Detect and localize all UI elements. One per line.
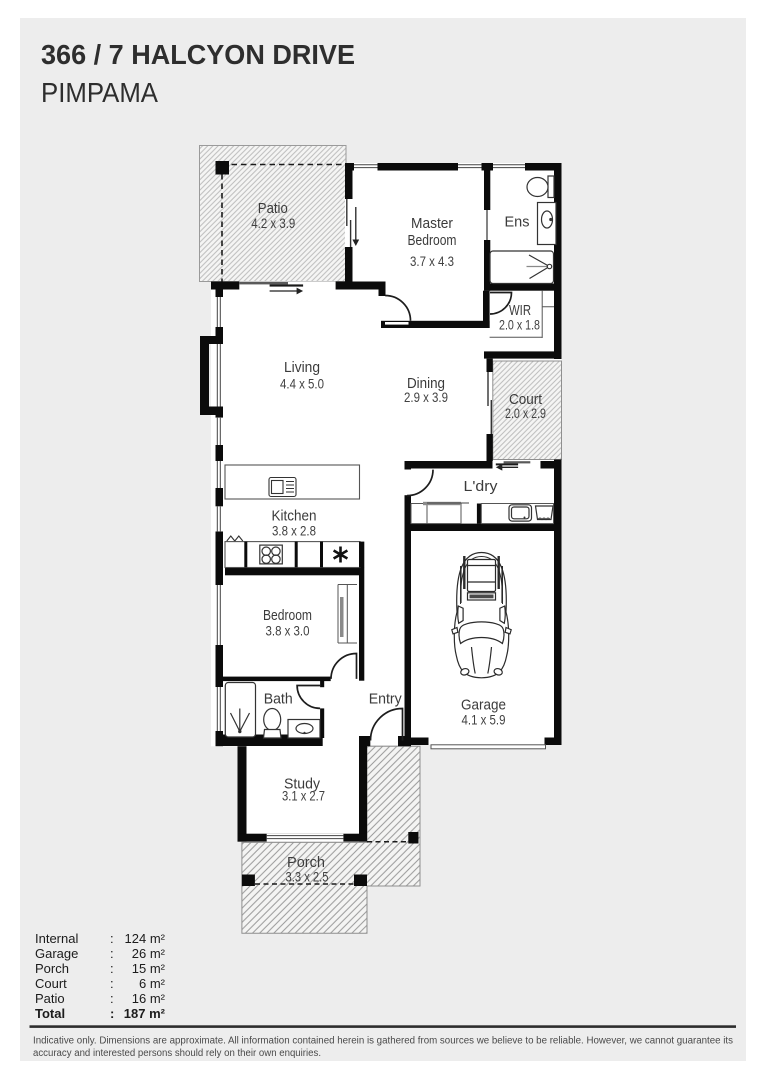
svg-text:187 m²: 187 m² xyxy=(124,1006,166,1021)
svg-text:Master: Master xyxy=(411,215,453,232)
svg-text:2.0 x 2.9: 2.0 x 2.9 xyxy=(505,405,546,421)
svg-text:Bedroom: Bedroom xyxy=(263,607,312,624)
svg-text:15 m²: 15 m² xyxy=(132,961,166,976)
svg-text:6 m²: 6 m² xyxy=(139,976,166,991)
svg-text:Internal: Internal xyxy=(35,931,78,946)
svg-text:3.8 x 2.8: 3.8 x 2.8 xyxy=(272,523,316,539)
svg-text:L'dry: L'dry xyxy=(464,478,499,495)
svg-text::: : xyxy=(110,946,114,961)
svg-text:Porch: Porch xyxy=(35,961,69,976)
svg-text:Court: Court xyxy=(35,976,67,991)
svg-text::: : xyxy=(110,991,114,1006)
svg-text::: : xyxy=(110,976,114,991)
svg-text:3.1 x 2.7: 3.1 x 2.7 xyxy=(282,788,325,804)
svg-text:PIMPAMA: PIMPAMA xyxy=(41,77,158,108)
svg-text:26 m²: 26 m² xyxy=(132,946,166,961)
svg-text:124 m²: 124 m² xyxy=(125,931,166,946)
svg-text:Bath: Bath xyxy=(264,691,293,708)
svg-text:Patio: Patio xyxy=(35,991,65,1006)
svg-text:Ens: Ens xyxy=(505,214,530,231)
svg-text:2.9 x 3.9: 2.9 x 3.9 xyxy=(404,389,448,405)
svg-text:16 m²: 16 m² xyxy=(132,991,166,1006)
svg-text:Entry: Entry xyxy=(369,691,402,708)
svg-text::: : xyxy=(110,931,114,946)
svg-text:Total: Total xyxy=(35,1006,65,1021)
svg-text:4.4 x 5.0: 4.4 x 5.0 xyxy=(280,376,324,392)
svg-text:3.7 x 4.3: 3.7 x 4.3 xyxy=(410,253,454,269)
svg-text:Bedroom: Bedroom xyxy=(408,232,457,249)
svg-text:366 / 7 HALCYON DRIVE: 366 / 7 HALCYON DRIVE xyxy=(41,39,355,70)
svg-text:Garage: Garage xyxy=(35,946,78,961)
svg-text:Indicative only. Dimensions ar: Indicative only. Dimensions are approxim… xyxy=(33,1036,733,1047)
svg-text:4.2 x 3.9: 4.2 x 3.9 xyxy=(251,215,295,231)
svg-text:4.1 x 5.9: 4.1 x 5.9 xyxy=(462,712,506,728)
svg-text:2.0 x 1.8: 2.0 x 1.8 xyxy=(499,317,540,333)
svg-text:Living: Living xyxy=(284,359,320,376)
svg-text:3.8 x 3.0: 3.8 x 3.0 xyxy=(266,623,310,639)
svg-text:3.3 x 2.5: 3.3 x 2.5 xyxy=(286,869,329,885)
svg-text:accuracy and interested person: accuracy and interested persons should r… xyxy=(33,1048,321,1059)
svg-text::: : xyxy=(110,961,114,976)
svg-text::: : xyxy=(110,1006,114,1021)
